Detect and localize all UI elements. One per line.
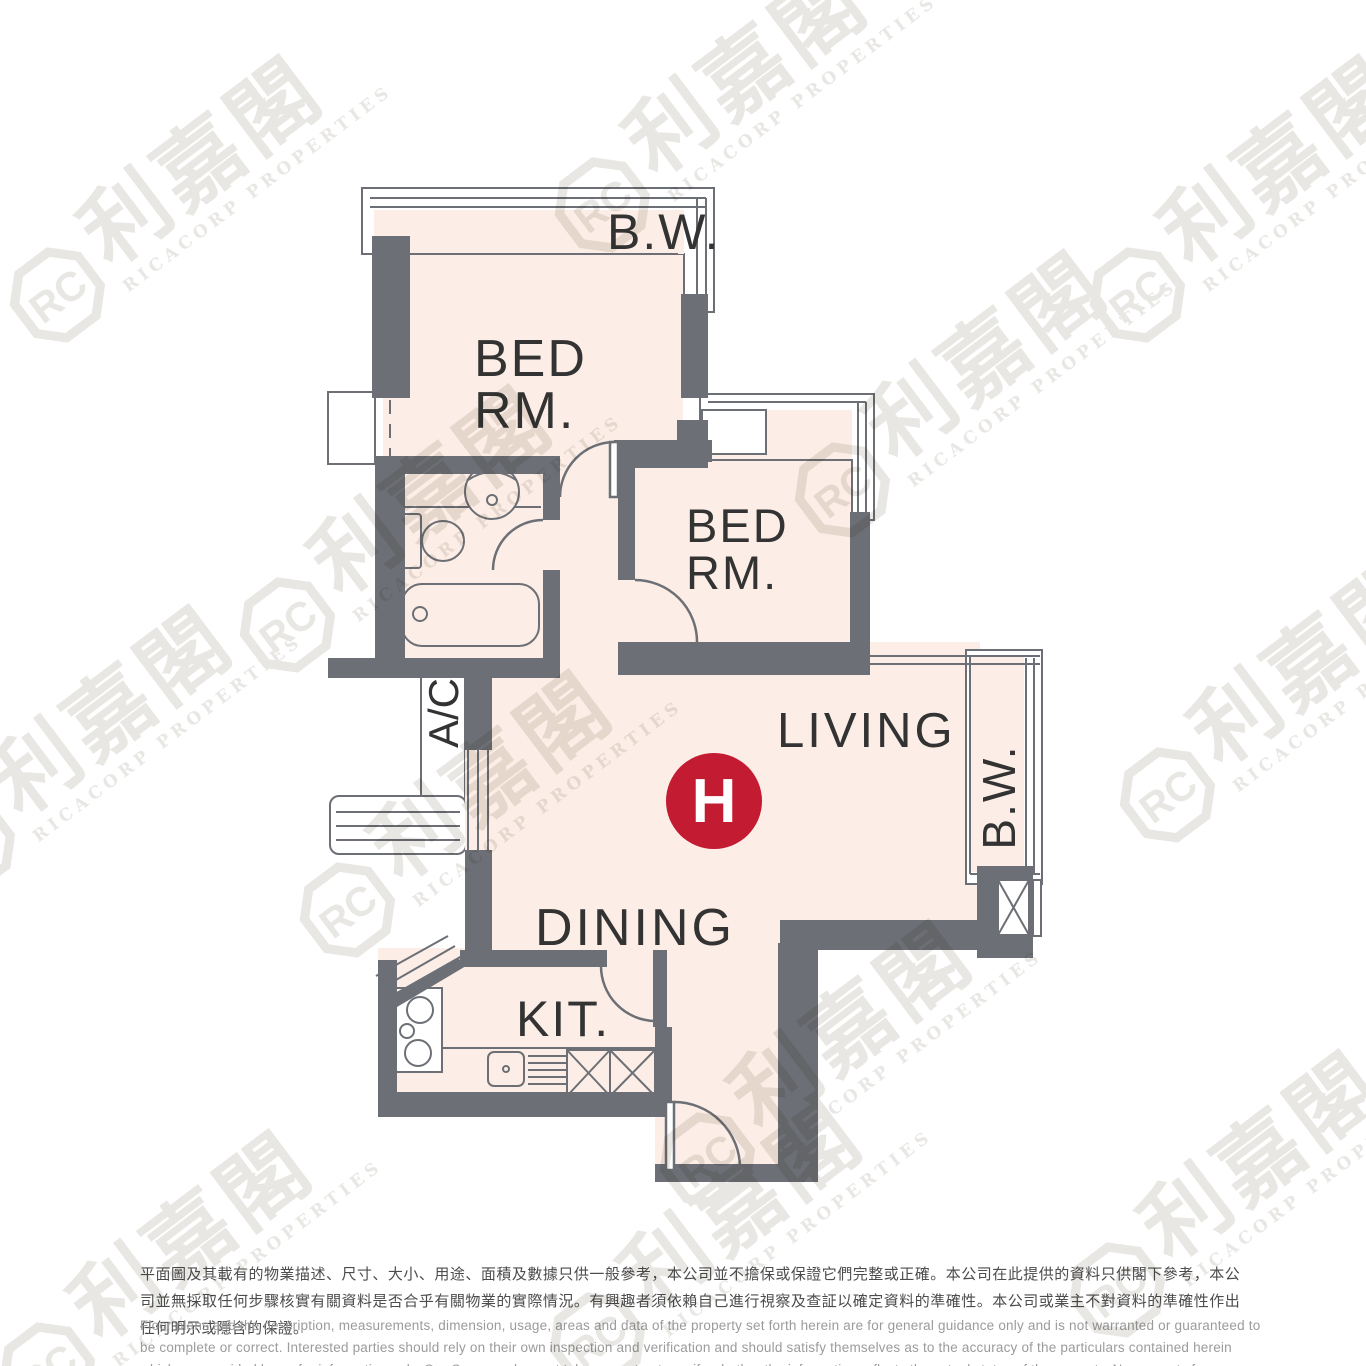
dining-window bbox=[465, 750, 492, 850]
wall bbox=[372, 236, 410, 398]
duct-box bbox=[998, 880, 1041, 936]
wall bbox=[465, 850, 492, 960]
wall bbox=[655, 1164, 818, 1182]
ac-louvre-platform bbox=[330, 796, 466, 854]
bedroom1-window-box bbox=[328, 392, 390, 464]
wall bbox=[378, 960, 397, 1100]
wall bbox=[618, 452, 708, 468]
floor-plan-drawing: BED RM. BED RM. LIVING DINING KIT. B.W. … bbox=[0, 0, 1366, 1366]
wall bbox=[778, 943, 818, 1182]
kitchen-sink bbox=[488, 1052, 524, 1086]
wall bbox=[398, 456, 548, 474]
wall bbox=[543, 456, 560, 520]
entrance-door-leaf bbox=[666, 1102, 674, 1170]
dining-label: DINING bbox=[535, 899, 735, 957]
ac-platform-label: A/C bbox=[420, 678, 467, 748]
unit-badge: H bbox=[666, 753, 762, 849]
disclaimer-english: Floor plans and the description, measure… bbox=[140, 1315, 1270, 1366]
bedroom1-label-line1: BED bbox=[474, 330, 587, 388]
wall bbox=[618, 452, 635, 580]
wall bbox=[850, 512, 870, 658]
unit-badge-letter: H bbox=[692, 767, 737, 836]
bedroom1-door-leaf bbox=[610, 442, 618, 497]
bedroom2-label-line2: RM. bbox=[686, 546, 778, 599]
wall bbox=[375, 456, 405, 678]
bedroom1-label-line2: RM. bbox=[474, 382, 575, 440]
bedroom2-label-line1: BED bbox=[686, 499, 789, 552]
living-label: LIVING bbox=[777, 704, 956, 758]
bay-window-right-label: B.W. bbox=[973, 744, 1025, 849]
kitchen-label: KIT. bbox=[516, 991, 610, 1047]
bay-window-top-label: B.W. bbox=[607, 204, 721, 260]
wall bbox=[681, 294, 708, 398]
bathtub bbox=[402, 584, 539, 646]
floor-plan-page: BED RM. BED RM. LIVING DINING KIT. B.W. … bbox=[0, 0, 1366, 1366]
wall bbox=[328, 658, 550, 678]
wall bbox=[465, 658, 492, 750]
wall bbox=[378, 1092, 672, 1117]
wall bbox=[618, 642, 870, 675]
wall bbox=[653, 950, 667, 1027]
wall bbox=[655, 1027, 672, 1105]
toilet-bowl bbox=[422, 521, 464, 561]
